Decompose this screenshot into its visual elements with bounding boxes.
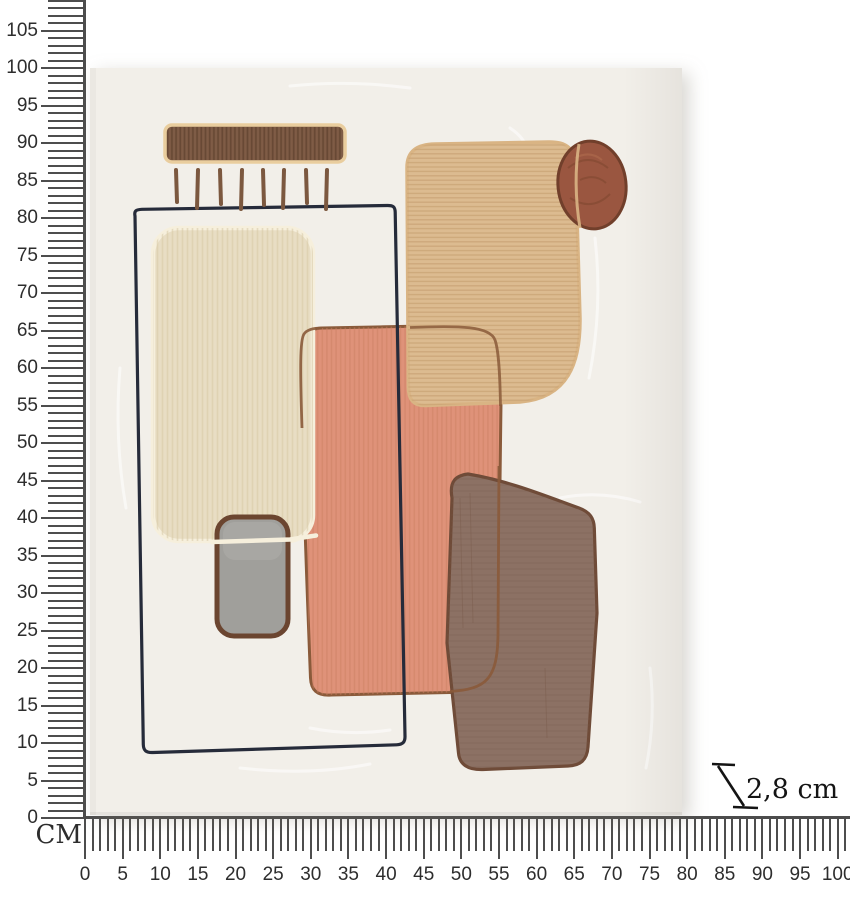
h-ruler-tick: [400, 816, 402, 851]
v-ruler-tick: [48, 585, 85, 587]
h-ruler-tick: [528, 816, 530, 851]
v-ruler-label: 55: [0, 395, 38, 417]
v-ruler-tick: [48, 345, 85, 347]
h-ruler-tick: [317, 816, 319, 851]
v-ruler-tick: [48, 22, 85, 24]
v-ruler-tick: [48, 622, 85, 624]
h-ruler-tick: [558, 816, 560, 851]
h-ruler-label: 80: [666, 864, 708, 886]
v-ruler-tick: [48, 82, 85, 84]
h-ruler-tick: [498, 816, 500, 859]
h-ruler-tick: [573, 816, 575, 859]
shape-tan-panel: [407, 142, 580, 406]
v-ruler-tick: [48, 210, 85, 212]
h-ruler-tick: [521, 816, 523, 851]
v-ruler-tick: [41, 442, 85, 444]
v-ruler-tick: [48, 765, 85, 767]
painting-canvas: [90, 68, 682, 815]
v-ruler-tick: [48, 757, 85, 759]
h-ruler-tick: [227, 816, 229, 851]
v-ruler-tick: [48, 52, 85, 54]
h-ruler-tick: [265, 816, 267, 851]
v-ruler-tick: [48, 682, 85, 684]
h-ruler-tick: [438, 816, 440, 851]
h-ruler-tick: [302, 816, 304, 851]
v-ruler-tick: [48, 120, 85, 122]
h-ruler-tick: [656, 816, 658, 851]
v-ruler-tick: [48, 195, 85, 197]
v-ruler-tick: [48, 600, 85, 602]
h-ruler-label: 100: [817, 864, 850, 886]
v-ruler-tick: [48, 457, 85, 459]
v-ruler-tick: [48, 802, 85, 804]
v-ruler-label: 70: [0, 282, 38, 304]
h-ruler-tick: [235, 816, 237, 859]
v-ruler-tick: [41, 480, 85, 482]
h-ruler-label: 20: [215, 864, 257, 886]
v-ruler-tick: [48, 607, 85, 609]
v-ruler-tick: [41, 705, 85, 707]
h-ruler-tick: [393, 816, 395, 851]
h-ruler-tick: [709, 816, 711, 851]
h-ruler-tick: [490, 816, 492, 851]
v-ruler-tick: [48, 660, 85, 662]
v-ruler-tick: [48, 412, 85, 414]
h-ruler-tick: [769, 816, 771, 851]
vertical-ruler: 1051009590858075706560555045403530252015…: [0, 0, 85, 822]
v-ruler-tick: [48, 90, 85, 92]
horizontal-ruler: 0510152025303540455055606570758085909510…: [85, 816, 850, 900]
h-ruler-label: 55: [478, 864, 520, 886]
h-ruler-tick: [325, 816, 327, 851]
v-ruler-tick: [48, 465, 85, 467]
h-ruler-tick: [144, 816, 146, 851]
v-ruler-label: 10: [0, 732, 38, 754]
v-ruler-tick: [48, 727, 85, 729]
h-ruler-tick: [475, 816, 477, 851]
v-ruler-tick: [48, 322, 85, 324]
h-ruler-tick: [641, 816, 643, 851]
v-ruler-label: 20: [0, 657, 38, 679]
v-ruler-label: 35: [0, 545, 38, 567]
v-ruler-tick: [48, 532, 85, 534]
v-ruler-tick: [48, 675, 85, 677]
v-ruler-tick: [48, 577, 85, 579]
h-ruler-tick: [784, 816, 786, 851]
h-ruler-tick: [543, 816, 545, 851]
h-ruler-tick: [844, 816, 846, 851]
h-ruler-tick: [385, 816, 387, 859]
v-ruler-tick: [48, 165, 85, 167]
v-ruler-tick: [48, 525, 85, 527]
h-ruler-tick: [822, 816, 824, 851]
h-ruler-tick: [453, 816, 455, 851]
h-ruler-tick: [114, 816, 116, 851]
v-ruler-tick: [41, 405, 85, 407]
v-ruler-tick: [48, 7, 85, 9]
v-ruler-tick: [48, 795, 85, 797]
h-ruler-label: 15: [177, 864, 219, 886]
h-ruler-tick: [483, 816, 485, 851]
ruler-unit-label: CM: [0, 820, 82, 850]
h-ruler-tick: [626, 816, 628, 851]
depth-annotation: 2,8 cm: [700, 753, 840, 815]
v-ruler-tick: [41, 292, 85, 294]
v-ruler-label: 45: [0, 470, 38, 492]
v-ruler-label: 60: [0, 357, 38, 379]
v-ruler-tick: [48, 127, 85, 129]
v-ruler-tick: [48, 270, 85, 272]
v-ruler-tick: [48, 420, 85, 422]
v-ruler-tick: [41, 330, 85, 332]
h-ruler-tick: [250, 816, 252, 851]
h-ruler-tick: [189, 816, 191, 851]
v-ruler-tick: [48, 360, 85, 362]
canvas-bottom-edge: [90, 812, 682, 815]
v-ruler-tick: [48, 202, 85, 204]
h-ruler-tick: [746, 816, 748, 851]
v-ruler-label: 5: [0, 770, 38, 792]
h-ruler-tick: [280, 816, 282, 851]
h-ruler-tick: [370, 816, 372, 851]
h-ruler-label: 30: [290, 864, 332, 886]
v-ruler-tick: [48, 810, 85, 812]
v-ruler-tick: [41, 780, 85, 782]
h-ruler-tick: [618, 816, 620, 851]
v-ruler-label: 90: [0, 132, 38, 154]
h-ruler-tick: [242, 816, 244, 851]
h-ruler-tick: [340, 816, 342, 851]
h-ruler-tick: [566, 816, 568, 851]
h-ruler-tick: [671, 816, 673, 851]
v-ruler-tick: [48, 502, 85, 504]
v-ruler-tick: [48, 720, 85, 722]
h-ruler-label: 10: [139, 864, 181, 886]
v-ruler-tick: [41, 30, 85, 32]
v-ruler-tick: [48, 690, 85, 692]
v-ruler-tick: [48, 390, 85, 392]
h-ruler-tick: [122, 816, 124, 859]
h-ruler-tick: [664, 816, 666, 851]
h-ruler-label: 40: [365, 864, 407, 886]
h-ruler-tick: [197, 816, 199, 859]
v-ruler-tick: [48, 637, 85, 639]
h-ruler-label: 0: [64, 864, 106, 886]
h-ruler-tick: [310, 816, 312, 859]
h-ruler-tick: [167, 816, 169, 851]
h-ruler-label: 25: [252, 864, 294, 886]
v-ruler-label: 25: [0, 620, 38, 642]
v-ruler-label: 50: [0, 432, 38, 454]
v-ruler-tick: [48, 157, 85, 159]
h-ruler-label: 75: [629, 864, 671, 886]
v-ruler-label: 75: [0, 245, 38, 267]
h-ruler-tick: [754, 816, 756, 851]
v-ruler-tick: [48, 187, 85, 189]
h-ruler-tick: [807, 816, 809, 851]
h-ruler-tick: [415, 816, 417, 851]
h-ruler-tick: [588, 816, 590, 851]
h-ruler-tick: [551, 816, 553, 851]
v-ruler-label: 80: [0, 207, 38, 229]
v-ruler-tick: [48, 60, 85, 62]
shape-cream-panel: [153, 228, 313, 541]
v-ruler-tick: [41, 517, 85, 519]
v-ruler-label: 85: [0, 170, 38, 192]
h-ruler-tick: [378, 816, 380, 851]
v-ruler-tick: [48, 315, 85, 317]
product-dimension-image: 1051009590858075706560555045403530252015…: [0, 0, 850, 900]
v-ruler-tick: [48, 645, 85, 647]
h-ruler-label: 50: [440, 864, 482, 886]
h-ruler-tick: [272, 816, 274, 859]
v-ruler-tick: [48, 45, 85, 47]
v-ruler-tick: [48, 240, 85, 242]
h-ruler-tick: [174, 816, 176, 851]
v-ruler-tick: [48, 397, 85, 399]
h-ruler-tick: [506, 816, 508, 851]
h-ruler-tick: [152, 816, 154, 851]
v-ruler-tick: [48, 750, 85, 752]
v-ruler-tick: [48, 615, 85, 617]
v-ruler-tick: [48, 712, 85, 714]
h-ruler-label: 5: [102, 864, 144, 886]
v-ruler-tick: [48, 787, 85, 789]
v-ruler-tick: [48, 472, 85, 474]
v-ruler-tick: [48, 150, 85, 152]
v-ruler-tick: [48, 262, 85, 264]
v-ruler-tick: [48, 277, 85, 279]
h-ruler-tick: [686, 816, 688, 859]
shape-taupe-slab: [447, 474, 597, 770]
v-ruler-tick: [48, 307, 85, 309]
h-ruler-tick: [257, 816, 259, 851]
h-ruler-tick: [460, 816, 462, 859]
v-ruler-tick: [41, 742, 85, 744]
h-ruler-tick: [739, 816, 741, 851]
v-ruler-label: 95: [0, 95, 38, 117]
h-ruler-tick: [761, 816, 763, 859]
h-ruler-tick: [99, 816, 101, 851]
h-ruler-label: 95: [779, 864, 821, 886]
h-ruler-tick: [581, 816, 583, 851]
h-ruler-tick: [137, 816, 139, 851]
h-ruler-tick: [204, 816, 206, 851]
v-ruler-tick: [41, 180, 85, 182]
v-ruler-label: 30: [0, 582, 38, 604]
h-ruler-label: 35: [327, 864, 369, 886]
v-ruler-tick: [48, 300, 85, 302]
v-ruler-tick: [48, 435, 85, 437]
v-ruler-tick: [48, 487, 85, 489]
v-ruler-tick: [41, 817, 85, 819]
h-ruler-tick: [649, 816, 651, 859]
v-ruler-tick: [48, 172, 85, 174]
v-ruler-tick: [48, 247, 85, 249]
h-ruler-tick: [694, 816, 696, 851]
h-ruler-tick: [536, 816, 538, 859]
v-ruler-tick: [41, 67, 85, 69]
h-ruler-tick: [355, 816, 357, 851]
v-ruler-tick: [48, 735, 85, 737]
h-ruler-label: 85: [704, 864, 746, 886]
v-ruler-tick: [41, 217, 85, 219]
h-ruler-tick: [611, 816, 613, 859]
h-ruler-tick: [596, 816, 598, 851]
v-ruler-tick: [48, 697, 85, 699]
h-ruler-tick: [129, 816, 131, 851]
v-ruler-tick: [41, 142, 85, 144]
v-ruler-tick: [48, 375, 85, 377]
v-ruler-tick: [41, 255, 85, 257]
h-ruler-tick: [716, 816, 718, 851]
h-ruler-tick: [159, 816, 161, 859]
h-ruler-tick: [799, 816, 801, 859]
h-ruler-label: 60: [516, 864, 558, 886]
h-ruler-tick: [362, 816, 364, 851]
h-ruler-label: 45: [403, 864, 445, 886]
v-ruler-label: 100: [0, 57, 38, 79]
shape-ribbed-bar: [165, 125, 345, 162]
v-ruler-tick: [48, 97, 85, 99]
h-ruler-tick: [332, 816, 334, 851]
h-ruler-tick: [731, 816, 733, 851]
v-ruler-tick: [48, 450, 85, 452]
v-ruler-tick: [48, 562, 85, 564]
v-ruler-tick: [48, 570, 85, 572]
h-ruler-tick: [182, 816, 184, 851]
depth-value: 2,8 cm: [746, 774, 838, 805]
h-ruler-tick: [679, 816, 681, 851]
v-ruler-tick: [48, 337, 85, 339]
v-ruler-tick: [41, 555, 85, 557]
h-ruler-tick: [603, 816, 605, 851]
v-ruler-tick: [48, 15, 85, 17]
h-ruler-tick: [430, 816, 432, 851]
h-ruler-tick: [513, 816, 515, 851]
v-ruler-tick: [41, 667, 85, 669]
h-ruler-label: 65: [553, 864, 595, 886]
h-ruler-label: 90: [741, 864, 783, 886]
h-ruler-tick: [287, 816, 289, 851]
v-ruler-tick: [41, 367, 85, 369]
h-ruler-tick: [724, 816, 726, 859]
h-ruler-tick: [212, 816, 214, 851]
v-ruler-tick: [48, 427, 85, 429]
h-ruler-tick: [92, 816, 94, 851]
h-ruler-tick: [776, 816, 778, 851]
h-ruler-tick: [423, 816, 425, 859]
h-ruler-tick: [445, 816, 447, 851]
h-ruler-tick: [633, 816, 635, 851]
v-ruler-tick: [48, 75, 85, 77]
v-ruler-label: 40: [0, 507, 38, 529]
v-ruler-tick: [48, 285, 85, 287]
v-ruler-tick: [41, 592, 85, 594]
v-ruler-tick: [41, 105, 85, 107]
h-ruler-tick: [84, 816, 86, 859]
h-ruler-tick: [814, 816, 816, 851]
v-ruler-label: 15: [0, 695, 38, 717]
v-ruler-label: 105: [0, 20, 38, 42]
shape-gray-stone: [217, 517, 288, 636]
v-ruler-tick: [48, 510, 85, 512]
v-ruler-tick: [48, 382, 85, 384]
v-ruler-tick: [48, 0, 85, 2]
h-ruler-tick: [468, 816, 470, 851]
v-ruler-tick: [48, 652, 85, 654]
h-ruler-tick: [295, 816, 297, 851]
v-ruler-tick: [48, 232, 85, 234]
v-ruler-tick: [48, 772, 85, 774]
v-ruler-label: 65: [0, 320, 38, 342]
h-ruler-tick: [219, 816, 221, 851]
h-ruler-tick: [792, 816, 794, 851]
h-ruler-tick: [829, 816, 831, 851]
v-ruler-tick: [48, 540, 85, 542]
v-ruler-tick: [48, 352, 85, 354]
v-ruler-tick: [48, 37, 85, 39]
h-ruler-tick: [701, 816, 703, 851]
h-ruler-tick: [347, 816, 349, 859]
v-ruler-tick: [48, 547, 85, 549]
v-ruler-tick: [41, 630, 85, 632]
v-ruler-tick: [48, 112, 85, 114]
v-ruler-tick: [48, 225, 85, 227]
h-ruler-label: 70: [591, 864, 633, 886]
v-ruler-tick: [48, 135, 85, 137]
h-ruler-tick: [107, 816, 109, 851]
v-ruler-tick: [48, 495, 85, 497]
h-ruler-tick: [408, 816, 410, 851]
h-ruler-tick: [837, 816, 839, 859]
